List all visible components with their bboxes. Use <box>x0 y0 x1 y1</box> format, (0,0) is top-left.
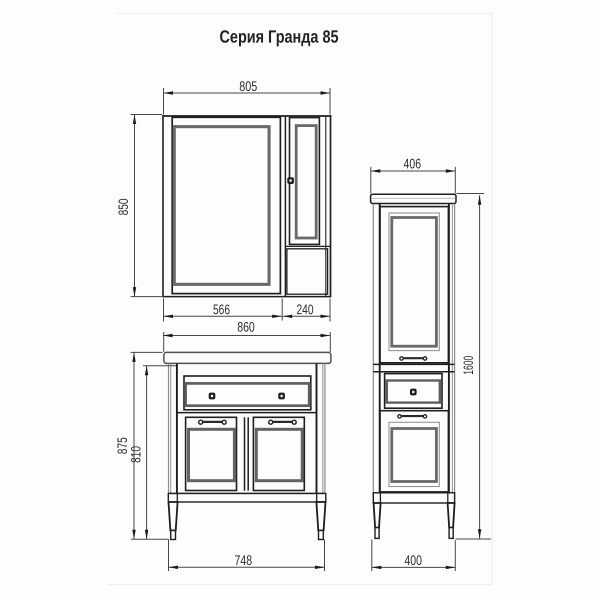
svg-text:850: 850 <box>115 198 131 215</box>
svg-text:1600: 1600 <box>460 356 476 375</box>
svg-text:566: 566 <box>213 301 230 317</box>
svg-text:Серия Гранда 85: Серия Гранда 85 <box>219 27 338 47</box>
svg-text:810: 810 <box>127 446 143 463</box>
svg-text:805: 805 <box>239 78 257 94</box>
svg-text:748: 748 <box>235 552 253 568</box>
svg-text:240: 240 <box>296 301 313 317</box>
svg-text:400: 400 <box>404 552 422 568</box>
svg-text:860: 860 <box>237 319 255 335</box>
svg-text:406: 406 <box>404 155 422 171</box>
